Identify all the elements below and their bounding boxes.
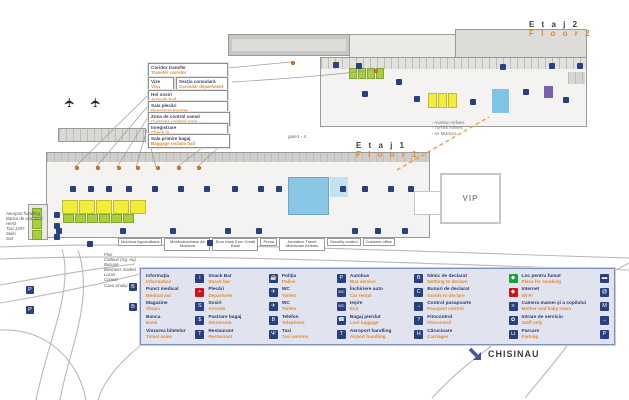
legend-item-text: WCToilets [282, 287, 334, 297]
legend-item-text: WCToilets [282, 301, 334, 311]
police-icon: P [337, 274, 346, 283]
facility-label: Security control [327, 238, 361, 246]
location-dot [156, 166, 160, 170]
facility-marker-icon [54, 212, 60, 218]
legend-item: RestaurantRestaurantΨ [208, 327, 278, 341]
legend-item: Snack BarSnack bar☕ [208, 272, 278, 286]
callout-en: Baggage reclaim hall [151, 141, 227, 146]
legend-label-en: Lost luggage [350, 320, 411, 325]
legend-item-text: Loc pentru fumatPlace for smoking [522, 274, 597, 284]
callout-box: Sala primire bagajBaggage reclaim hall [148, 134, 230, 148]
legend-item-text: Închiriere autoCar rental [350, 287, 411, 297]
legend-item: Bagaj pierdutLost luggage? [350, 313, 423, 327]
legend-panel: InformaţiaInformationiPunct medicalMedic… [140, 268, 615, 345]
bus-stop-icon: B [129, 303, 137, 311]
facility-marker-icon [106, 186, 112, 192]
staff-entrance-icon: → [600, 316, 609, 325]
facility-marker-icon [523, 89, 529, 95]
legend-column: Snack BarSnack bar☕PlecăriDepartures✈Sos… [208, 272, 278, 341]
legend-item-text: MagazineShops [146, 301, 192, 311]
facility-marker-icon [232, 186, 238, 192]
legend-item-text: ParcareParking [522, 329, 597, 339]
facility-marker-icon [500, 64, 506, 70]
legend-label-en: Place for smoking [522, 279, 597, 284]
facility-label: Moldindconbank Air Moldova [164, 238, 210, 251]
location-dot [291, 61, 295, 65]
legend-item-text: RestaurantRestaurant [208, 329, 266, 339]
callout-en: Consular department [179, 84, 225, 89]
legend-item: TelefonTelephone☎ [282, 313, 346, 327]
legend-item: CărucioareCarriages⊔ [427, 327, 517, 341]
legend-label-en: Exit [350, 306, 411, 311]
legend-item-text: IeşireExit [350, 301, 411, 311]
legend-item: Control pasapoartePassport control≡ [427, 300, 517, 314]
legend-label-en: Bus service [350, 279, 411, 284]
location-dot [197, 166, 201, 170]
facility-marker-icon [408, 186, 414, 192]
legend-item: Vinzarea biletelorTicket salesT [146, 327, 204, 341]
legend-item-text: InternetWi-Fi [522, 287, 597, 297]
bus-stop-icon: B [129, 283, 137, 291]
facility-marker-icon [126, 186, 132, 192]
legend-item-text: BancaBank [146, 315, 192, 325]
carriages-icon: ⊔ [509, 330, 518, 339]
facility-label: Customs office [363, 238, 395, 246]
legend-label-en: Bank [146, 320, 192, 325]
legend-item: AutobusBus serviceB [350, 272, 423, 286]
wc-icon: WC [337, 302, 346, 311]
bank-icon: $ [195, 316, 204, 325]
facility-marker-icon [276, 186, 282, 192]
legend-item-text: Aeroport handlingAirport handling [350, 329, 411, 339]
legend-label-en: Carriages [427, 334, 505, 339]
city-label: CHISINAU [488, 349, 540, 359]
legend-label-en: Storeroom [208, 320, 266, 325]
legend-item: TaxiTaxi serviceT [282, 327, 346, 341]
legend-label-en: Mother and baby room [522, 306, 597, 311]
facility-label: Moldova Agroindbank [118, 238, 162, 246]
facility-marker-icon [396, 79, 402, 85]
legend-label-en: Wi-Fi [522, 293, 597, 298]
legend-item: IeşireExit→ [350, 300, 423, 314]
legend-item: Camera mamei şi a copiluluiMother and ba… [522, 300, 609, 314]
legend-label-en: Departures [208, 293, 266, 298]
legend-item: Nimic de declaratNothing to declare◆ [427, 272, 517, 286]
facility-marker-icon [362, 186, 368, 192]
legend-item: Aeroport handlingAirport handlingH [350, 327, 423, 341]
legend-label-en: Parking [522, 334, 597, 339]
facility-marker-icon [402, 228, 408, 234]
facility-label-strip: Moldova AgroindbankMoldindconbank Air Mo… [118, 238, 395, 251]
arrivals-icon: ✈ [269, 302, 278, 311]
legend-label-en: Taxi service [282, 334, 334, 339]
storeroom-icon: B [269, 316, 278, 325]
legend-label-en: Toilets [282, 306, 334, 311]
wifi-icon: @ [600, 288, 609, 297]
legend-item: WCToiletsWC [282, 286, 346, 300]
legend-item: SosiriArrivals✈ [208, 300, 278, 314]
legend-item-text: Bagaj pierdutLost luggage [350, 315, 411, 325]
legend-item: Bunuri de declaratGoods to declare◆ [427, 286, 517, 300]
facility-marker-icon [362, 91, 368, 97]
legend-column: InformaţiaInformationiPunct medicalMedic… [146, 272, 204, 341]
legend-label-en: Police [282, 279, 334, 284]
facility-marker-icon [54, 234, 60, 240]
legend-item-text: TaxiTaxi service [282, 329, 334, 339]
airport-terminal-map: E t a j 2 F l o o r 2 Austrian AirlinesT… [0, 0, 629, 400]
facility-marker-icon [207, 240, 213, 246]
legend-item-text: Pastrare bagajStoreroom [208, 315, 266, 325]
callout-en: Transfer corridor [151, 70, 225, 75]
callout-box: Secţia consularăConsular department [176, 77, 228, 91]
parking-icon: P [26, 286, 34, 294]
legend-label-en: Ticket sales [146, 334, 192, 339]
medical-icon: + [195, 288, 204, 297]
facility-marker-icon [340, 186, 346, 192]
car-rental-icon: C [414, 288, 423, 297]
legend-label-en: Information [146, 279, 192, 284]
legend-item: Punct medicalMedical aid+ [146, 286, 204, 300]
facility-marker-icon [333, 62, 339, 68]
legend-label-en: Car rental [350, 293, 411, 298]
legend-label-en: Airport handling [350, 334, 411, 339]
facility-marker-icon [577, 63, 583, 69]
legend-label-en: Snack bar [208, 279, 266, 284]
facility-marker-icon [563, 97, 569, 103]
legend-label-en: Restaurant [208, 334, 266, 339]
nothing-to-declare-icon: ◆ [509, 274, 518, 283]
legend-item-text: Intrare de serviciuStaff only [522, 315, 597, 325]
legend-item: MagazineShopsS [146, 300, 204, 314]
facility-label: Euro bank Euro Credit Bank [212, 238, 258, 251]
legend-item-text: Vinzarea biletelorTicket sales [146, 329, 192, 339]
callout-en: Visa [151, 84, 171, 89]
passport-control-icon: ≡ [509, 302, 518, 311]
goods-to-declare-icon: ◆ [509, 288, 518, 297]
legend-label-en: Passport control [427, 306, 505, 311]
left-services-list: Aeroport handlingBanca de economiiHertzT… [6, 211, 43, 242]
legend-label-en: Toilets [282, 293, 334, 298]
facility-marker-icon [414, 96, 420, 102]
facility-marker-icon [87, 241, 93, 247]
airport-handling-icon: H [414, 330, 423, 339]
facility-marker-icon [388, 186, 394, 192]
legend-label-en: Fitocontrol [427, 320, 505, 325]
legend-item-text: InformaţiaInformation [146, 274, 192, 284]
callout-box: Coridor transferTransfer corridor [148, 63, 228, 77]
legend-item-text: Punct medicalMedical aid [146, 287, 192, 297]
telephone-icon: ☎ [337, 316, 346, 325]
legend-label-en: Goods to declare [427, 293, 505, 298]
legend-label-en: Medical aid [146, 293, 192, 298]
facility-marker-icon [256, 228, 262, 234]
legend-item: PlecăriDepartures✈ [208, 286, 278, 300]
legend-column: PoliţiaPolicePWCToiletsWCWCToiletsWCTele… [282, 272, 346, 341]
facility-marker-icon [170, 228, 176, 234]
legend-item: InformaţiaInformationi [146, 272, 204, 286]
facility-marker-icon [375, 228, 381, 234]
facility-marker-icon [152, 186, 158, 192]
ticket-sales-icon: T [195, 330, 204, 339]
snack-bar-icon: ☕ [269, 274, 278, 283]
legend-item-text: TelefonTelephone [282, 315, 334, 325]
facility-marker-icon [70, 186, 76, 192]
legend-column: AutobusBus serviceBÎnchiriere autoCar re… [350, 272, 423, 341]
arrow-down-right-icon [467, 346, 483, 362]
legend-item: PoliţiaPoliceP [282, 272, 346, 286]
legend-label-en: Nothing to declare [427, 279, 505, 284]
service-line: Sixt [6, 236, 43, 241]
legend-item-text: Nimic de declaratNothing to declare [427, 274, 505, 284]
facility-marker-icon [225, 228, 231, 234]
location-dot [374, 69, 378, 73]
legend-item-text: Control pasapoartePassport control [427, 301, 505, 311]
facility-marker-icon [258, 186, 264, 192]
legend-item-text: Snack BarSnack bar [208, 274, 266, 284]
smoking-icon: ▬ [600, 274, 609, 283]
callout-box: VizeVisa [148, 77, 174, 91]
departures-icon: ✈ [269, 288, 278, 297]
location-dot [136, 166, 140, 170]
legend-column: Loc pentru fumatPlace for smoking▬Intern… [522, 272, 609, 341]
city-direction: CHISINAU [467, 346, 540, 362]
lost-luggage-icon: ? [414, 316, 423, 325]
legend-item-text: PoliţiaPolice [282, 274, 334, 284]
taxi-icon: T [337, 330, 346, 339]
legend-item: InternetWi-Fi@ [522, 286, 609, 300]
legend-item-text: SosiriArrivals [208, 301, 266, 311]
exit-icon: → [414, 302, 423, 311]
legend-label-en: Shops [146, 306, 192, 311]
facility-marker-icon [549, 63, 555, 69]
legend-item: Pastrare bagajStoreroomB [208, 313, 278, 327]
legend-label-en: Arrivals [208, 306, 266, 311]
legend-item: ParcareParkingP [522, 327, 609, 341]
facility-marker-icon [470, 99, 476, 105]
facility-marker-icon [120, 228, 126, 234]
fitocontrol-icon: ✿ [509, 316, 518, 325]
mother-baby-icon: M [600, 302, 609, 311]
legend-item-text: CărucioareCarriages [427, 329, 505, 339]
legend-column: Nimic de declaratNothing to declare◆Bunu… [427, 272, 517, 341]
legend-label-en: Telephone [282, 320, 334, 325]
parking-icon: P [26, 306, 34, 314]
bus-icon: B [414, 274, 423, 283]
legend-item-text: PlecăriDepartures [208, 287, 266, 297]
parking-icon: P [600, 330, 609, 339]
location-dot [75, 166, 79, 170]
facility-marker-icon [54, 223, 60, 229]
location-dot [117, 166, 121, 170]
restaurant-icon: Ψ [269, 330, 278, 339]
info-icon: i [195, 274, 204, 283]
facility-marker-icon [356, 63, 362, 69]
legend-item: FitocontrolFitocontrol✿ [427, 313, 517, 327]
legend-item-text: AutobusBus service [350, 274, 411, 284]
facility-label: Presa [260, 238, 276, 246]
facility-label: Amadeus Travel Moldavian Airlines [279, 238, 325, 251]
legend-item: Intrare de serviciuStaff only→ [522, 313, 609, 327]
legend-item-text: Bunuri de declaratGoods to declare [427, 287, 505, 297]
wc-icon: WC [337, 288, 346, 297]
location-dot [96, 166, 100, 170]
facility-marker-icon [88, 186, 94, 192]
legend-item-text: Camera mamei şi a copiluluiMother and ba… [522, 301, 597, 311]
facility-marker-icon [178, 186, 184, 192]
legend-item-text: FitocontrolFitocontrol [427, 315, 505, 325]
legend-item: WCToiletsWC [282, 300, 346, 314]
legend-item: BancaBank$ [146, 313, 204, 327]
legend-item: Loc pentru fumatPlace for smoking▬ [522, 272, 609, 286]
legend-item: Închiriere autoCar rentalC [350, 286, 423, 300]
legend-label-en: Staff only [522, 320, 597, 325]
location-dot [177, 166, 181, 170]
shops-icon: S [195, 302, 204, 311]
facility-marker-icon [204, 186, 210, 192]
facility-marker-icon [352, 228, 358, 234]
floor-connector-dashed-line [397, 117, 489, 170]
